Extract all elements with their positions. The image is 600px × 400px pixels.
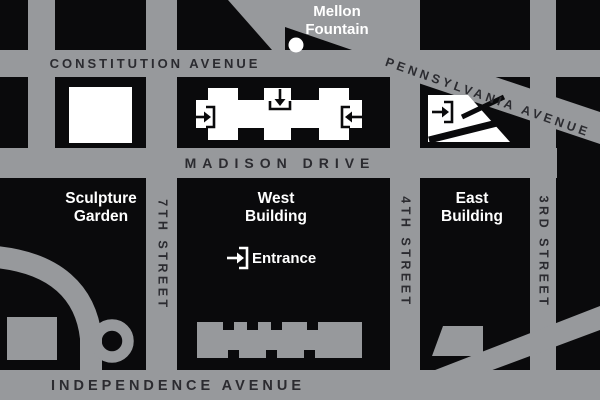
- constitution-avenue-label: CONSTITUTION AVENUE: [50, 56, 261, 71]
- east-building-label-line1: East: [456, 190, 489, 207]
- madison-drive-label: MADISON DRIVE: [185, 155, 376, 171]
- independence-avenue-label: INDEPENDENCE AVENUE: [51, 378, 305, 394]
- third-street-label: 3RD STREET: [537, 196, 551, 309]
- sculpture-garden-label-line2: Garden: [74, 208, 128, 225]
- fountain-dot-icon: [289, 38, 304, 53]
- mellon-fountain-label-line2: Fountain: [305, 21, 368, 38]
- garden-pavilion-block: [7, 317, 57, 360]
- entrance-label: Entrance: [252, 250, 316, 267]
- east-building-label-line2: Building: [441, 208, 503, 225]
- west-building-label-line2: Building: [245, 208, 307, 225]
- fourth-street-label: 4TH STREET: [399, 196, 413, 307]
- mellon-fountain-label-line1: Mellon: [313, 3, 361, 20]
- map-canvas: CONSTITUTION AVENUE PENNSYLVANIA AVENUE …: [0, 0, 600, 400]
- west-building-label-line1: West: [258, 190, 295, 207]
- ninth-street-road: [28, 0, 55, 150]
- nga-area-map: CONSTITUTION AVENUE PENNSYLVANIA AVENUE …: [0, 0, 600, 400]
- garden-pavilion-white: [69, 87, 132, 143]
- seventh-street-label: 7TH STREET: [156, 199, 170, 310]
- sculpture-garden-label-line1: Sculpture: [65, 190, 137, 207]
